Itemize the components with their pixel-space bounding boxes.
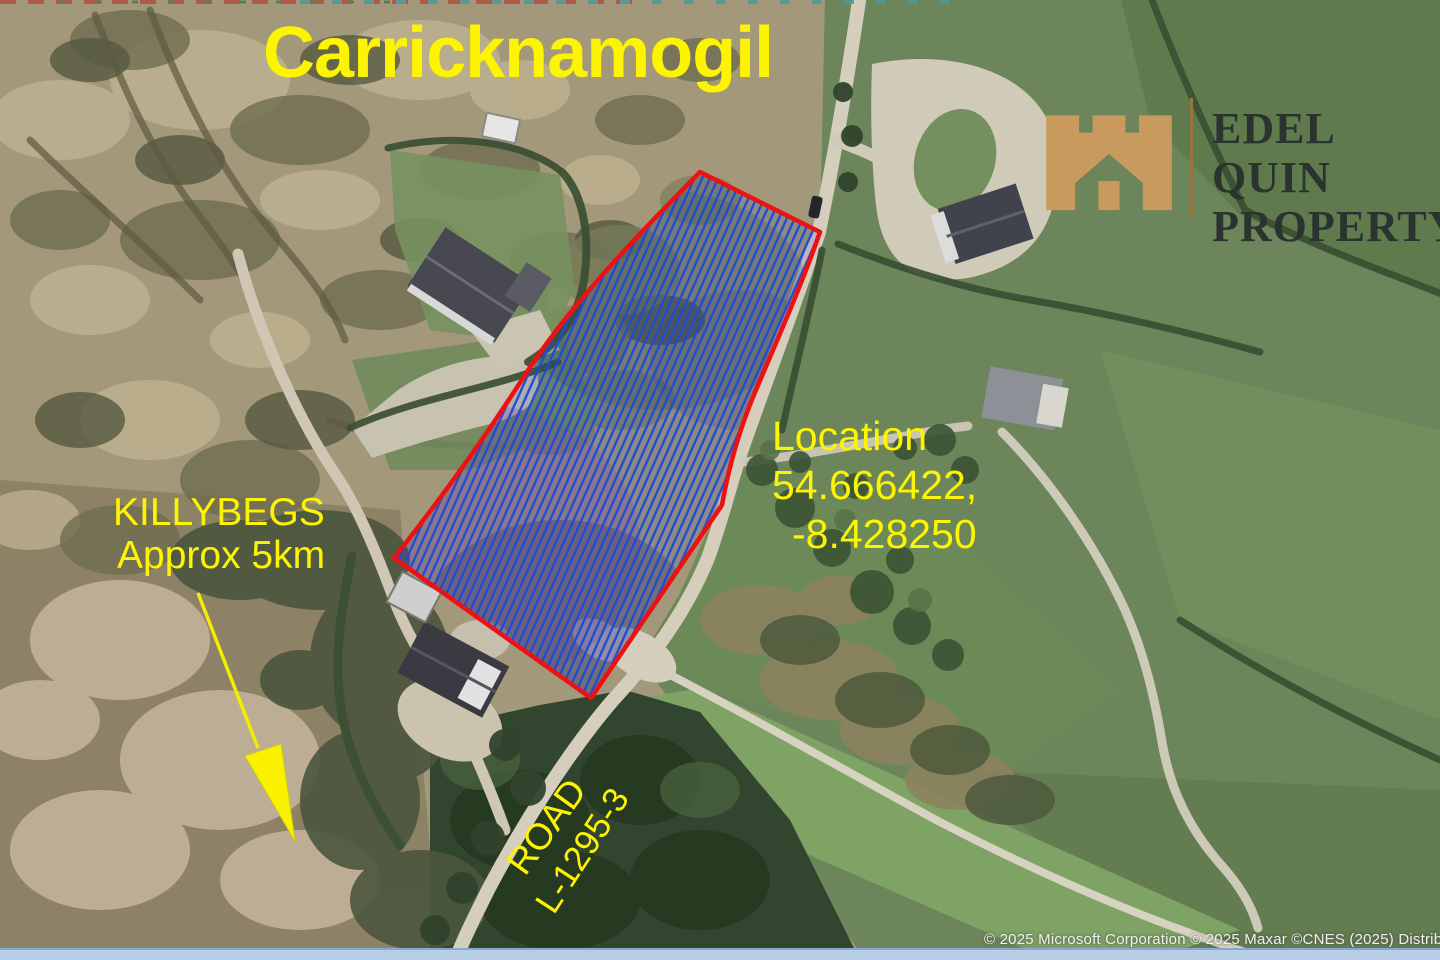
location-longitude: -8.428250 xyxy=(772,510,977,559)
bottom-scroll-bar[interactable] xyxy=(0,948,1440,960)
map-attribution: © 2025 Microsoft Corporation © 2025 Maxa… xyxy=(984,931,1440,948)
aerial-map xyxy=(0,0,1440,960)
location-label: Location xyxy=(772,412,977,461)
destination-label: KILLYBEGS xyxy=(113,492,325,535)
destination-distance: Approx 5km xyxy=(117,535,325,578)
property-map-screenshot: Carricknamogil KILLYBEGS Approx 5km Loca… xyxy=(0,0,1440,960)
location-latitude: 54.666422, xyxy=(772,461,977,510)
place-title: Carricknamogil xyxy=(263,14,773,93)
location-callout: Location 54.666422, -8.428250 xyxy=(772,412,977,559)
